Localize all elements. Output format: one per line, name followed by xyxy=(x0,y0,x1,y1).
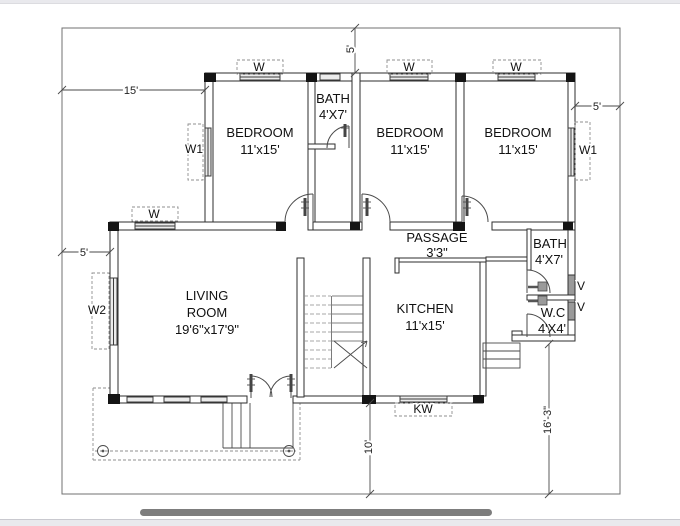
plumbing xyxy=(528,282,547,305)
dim-5ft-left: 5' xyxy=(58,247,114,259)
wall-bath-right xyxy=(352,73,360,230)
dim-label: 15' xyxy=(124,85,138,97)
bottom-window-edge xyxy=(0,519,680,526)
room-name-wc: W.C xyxy=(541,305,566,320)
window-label-w1: W1 xyxy=(185,142,203,156)
window-living-bottom-3 xyxy=(201,397,227,402)
door-leaf-icon xyxy=(287,374,295,392)
wall-bath-left xyxy=(308,73,315,230)
room-size-kitchen: 11'x15' xyxy=(405,318,444,333)
vent-wc xyxy=(568,302,575,320)
wall-bathtop-bottom xyxy=(308,144,335,149)
room-name-living-1: LIVING xyxy=(186,288,229,303)
floor-plan-canvas: 15' 5' 5' 5' 10' xyxy=(0,0,680,526)
door-leaf-icon xyxy=(363,198,371,216)
dim-label: 5' xyxy=(80,247,88,259)
wall-bedrooms-bottom-d xyxy=(492,222,575,230)
wall-kitchen-right xyxy=(480,262,486,396)
wall-bedroom-divider xyxy=(456,73,464,230)
vent-bath xyxy=(568,275,575,295)
vent-label-v: V xyxy=(577,279,585,293)
app-window: 15' 5' 5' 5' 10' xyxy=(0,0,680,526)
stair-treads-lower-flight xyxy=(332,296,363,341)
horizontal-scrollbar[interactable] xyxy=(140,509,492,516)
dim-5ft-top: 5' xyxy=(345,24,359,77)
window-label-w: W xyxy=(253,60,265,74)
room-size-living: 19'6"x17'9" xyxy=(175,322,239,337)
wall-passage-south xyxy=(486,257,527,261)
porch-column-left-dot xyxy=(102,450,105,453)
dim-label: 5' xyxy=(345,45,357,53)
dim-10ft: 10' xyxy=(363,399,375,498)
window-living-bottom-1 xyxy=(127,397,153,402)
dim-label: 10' xyxy=(363,440,375,454)
door-bedroom2 xyxy=(362,194,390,222)
door-bedroom3 xyxy=(462,196,488,222)
room-name-living-2: ROOM xyxy=(187,305,227,320)
room-size-bedroom-left: 11'x15' xyxy=(240,142,279,157)
window-label-w2: W2 xyxy=(88,303,106,317)
windows xyxy=(110,74,575,402)
window-label-w: W xyxy=(403,60,415,74)
porch-column-right-dot xyxy=(288,450,291,453)
window-label-kw: KW xyxy=(413,402,433,416)
wall-kitchen-top-return xyxy=(395,258,399,273)
vent-label-v: V xyxy=(577,300,585,314)
entry-steps xyxy=(223,403,293,448)
room-size-wc: 4'X4' xyxy=(538,321,566,336)
room-labels: BEDROOM 11'x15' BEDROOM 11'x15' BEDROOM … xyxy=(175,91,567,337)
room-size-passage: 3'3" xyxy=(426,245,448,260)
dim-label: 16'-3" xyxy=(542,406,554,434)
room-name-bath-top: BATH xyxy=(316,91,350,106)
staircase xyxy=(304,296,367,368)
dim-15ft: 15' xyxy=(58,85,209,97)
door-leaf-icon xyxy=(247,374,255,392)
room-name-kitchen: KITCHEN xyxy=(396,301,453,316)
wall-bath2-left xyxy=(527,229,531,270)
room-name-bath-right: BATH xyxy=(533,236,567,251)
room-name-passage: PASSAGE xyxy=(406,230,468,245)
window-bathtop xyxy=(320,74,340,80)
room-name-bedroom-middle: BEDROOM xyxy=(376,125,443,140)
wall-stair-left xyxy=(297,258,304,397)
stair-break-mark xyxy=(334,341,367,368)
room-size-bedroom-right: 11'x15' xyxy=(498,142,537,157)
stair-treads-upper-flight xyxy=(304,296,331,368)
dim-label: 5' xyxy=(593,101,601,113)
window-living-bottom-2 xyxy=(164,397,190,402)
room-size-bath-right: 4'X7' xyxy=(535,252,563,267)
faucet-icon xyxy=(528,282,547,291)
wall-bath2-wc-divider xyxy=(527,295,575,300)
kitchen-steps xyxy=(483,343,520,368)
room-name-bedroom-left: BEDROOM xyxy=(226,125,293,140)
window-label-w1: W1 xyxy=(579,143,597,157)
room-name-bedroom-right: BEDROOM xyxy=(484,125,551,140)
window-label-w: W xyxy=(148,207,160,221)
wall-bottom-b xyxy=(293,396,483,403)
wall-piers xyxy=(108,73,575,404)
wall-stair-right xyxy=(363,258,370,397)
room-size-bath-top: 4'X7' xyxy=(319,107,347,122)
room-size-bedroom-middle: 11'x15' xyxy=(390,142,429,157)
door-living-double xyxy=(247,374,295,398)
dim-16ft3in: 16'-3" xyxy=(542,340,554,498)
wall-bedrooms-bottom-c xyxy=(390,222,462,230)
window-label-w: W xyxy=(510,60,522,74)
walls xyxy=(110,73,575,403)
dim-5ft-right: 5' xyxy=(571,101,624,113)
